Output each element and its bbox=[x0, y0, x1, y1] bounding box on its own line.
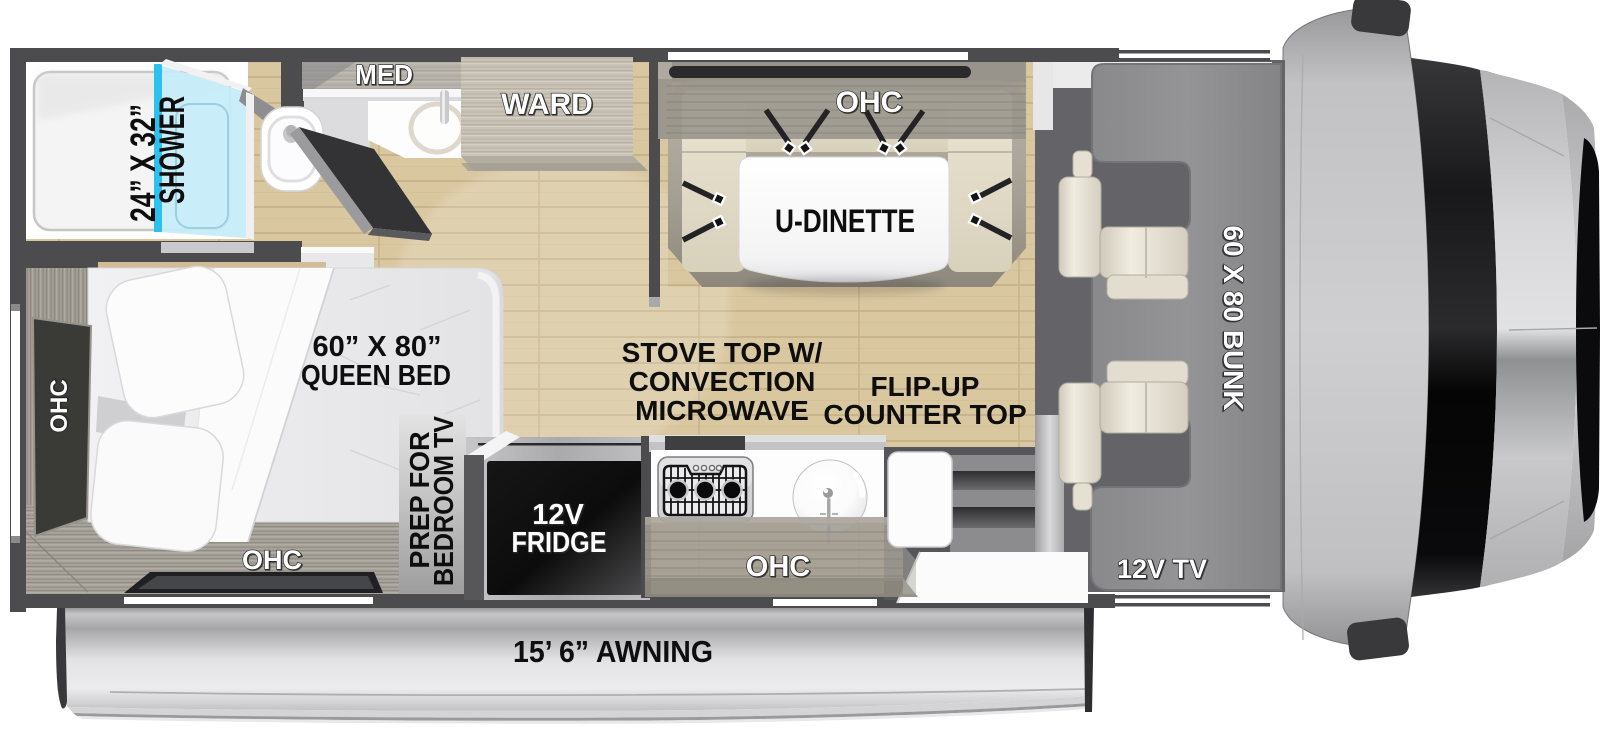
svg-text:60 X 80 BUNK: 60 X 80 BUNK bbox=[1218, 225, 1249, 410]
svg-text:OHC: OHC bbox=[242, 545, 302, 575]
svg-text:STOVE TOP W/: STOVE TOP W/ bbox=[622, 337, 823, 368]
svg-text:FRIDGE: FRIDGE bbox=[512, 527, 607, 559]
svg-text:MICROWAVE: MICROWAVE bbox=[635, 395, 809, 426]
svg-text:BEDROOM TV: BEDROOM TV bbox=[428, 416, 459, 586]
svg-text:FLIP-UP: FLIP-UP bbox=[871, 371, 980, 402]
svg-text:60” X 80”: 60” X 80” bbox=[313, 331, 442, 363]
svg-text:U-DINETTE: U-DINETTE bbox=[775, 203, 915, 239]
svg-text:WARD: WARD bbox=[501, 88, 593, 121]
svg-text:12V TV: 12V TV bbox=[1117, 554, 1207, 584]
svg-text:OHC: OHC bbox=[746, 551, 811, 583]
svg-text:OHC: OHC bbox=[46, 379, 73, 432]
svg-text:OHC: OHC bbox=[836, 86, 903, 119]
svg-text:MED: MED bbox=[355, 59, 413, 90]
svg-text:SHOWER: SHOWER bbox=[153, 96, 192, 204]
svg-text:CONVECTION: CONVECTION bbox=[629, 366, 816, 397]
svg-text:15’ 6” AWNING: 15’ 6” AWNING bbox=[513, 634, 713, 669]
svg-text:QUEEN BED: QUEEN BED bbox=[301, 360, 451, 392]
svg-text:COUNTER TOP: COUNTER TOP bbox=[823, 399, 1026, 430]
